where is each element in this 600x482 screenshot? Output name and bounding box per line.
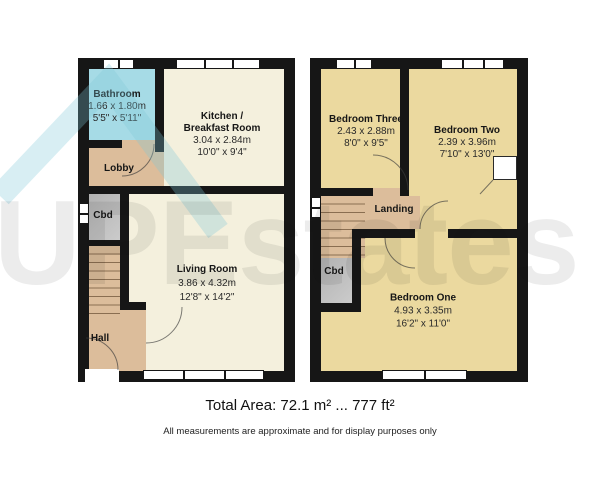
- kitchen-label: Kitchen / Breakfast Room 3.04 x 2.84m 10…: [184, 111, 261, 159]
- wall: [352, 238, 361, 312]
- cbd-side-window: [79, 203, 89, 224]
- wall: [89, 186, 284, 194]
- living-room-label: Living Room 3.86 x 4.32m 12'8" x 14'2": [177, 263, 238, 305]
- cbd-ground-label: Cbd: [93, 210, 112, 222]
- bedroom-one-doorway: [415, 229, 448, 238]
- wall: [120, 302, 146, 310]
- wall: [352, 229, 415, 238]
- wall: [89, 140, 122, 148]
- bedroom-three-window: [336, 59, 372, 69]
- bedroom-two-label: Bedroom Two 2.39 x 3.96m 7'10" x 13'0": [434, 125, 500, 161]
- kitchen-window: [176, 59, 260, 69]
- stairs-side-window: [311, 197, 321, 218]
- wall: [155, 69, 164, 152]
- disclaimer-text: All measurements are approximate and for…: [0, 426, 600, 437]
- bedroom-one-window: [382, 370, 467, 380]
- cbd-first-label: Cbd: [324, 266, 343, 278]
- bathroom-label: Bathroom 1.66 x 1.80m 5'5" x 5'11": [88, 89, 146, 125]
- stairs-ground: [89, 246, 120, 321]
- bedroom-two-window: [441, 59, 504, 69]
- lobby-label: Lobby: [104, 163, 134, 175]
- wall: [321, 188, 373, 196]
- wall: [321, 303, 352, 312]
- bedroom-three-doorway: [373, 188, 400, 196]
- lobby-kitchen-doorway: [155, 152, 164, 186]
- room-cbd-first: [321, 258, 352, 303]
- hall-label: Hall: [91, 333, 109, 345]
- front-door-opening: [85, 369, 119, 382]
- wall: [448, 229, 517, 238]
- landing-label: Landing: [375, 204, 414, 216]
- floor-plan-page: Bathroom 1.66 x 1.80m 5'5" x 5'11" Kitch…: [0, 0, 600, 482]
- room-bedroom-one-ext: [321, 312, 361, 371]
- wall: [120, 194, 129, 302]
- bedroom-three-label: Bedroom Three 2.43 x 2.88m 8'0" x 9'5": [329, 114, 403, 150]
- total-area-text: Total Area: 72.1 m² ... 777 ft²: [0, 397, 600, 414]
- living-room-window: [143, 370, 264, 380]
- bedroom-one-label: Bedroom One 4.93 x 3.35m 16'2" x 11'0": [390, 292, 456, 331]
- floor-plan-first: [310, 58, 528, 382]
- bathroom-window: [103, 59, 134, 69]
